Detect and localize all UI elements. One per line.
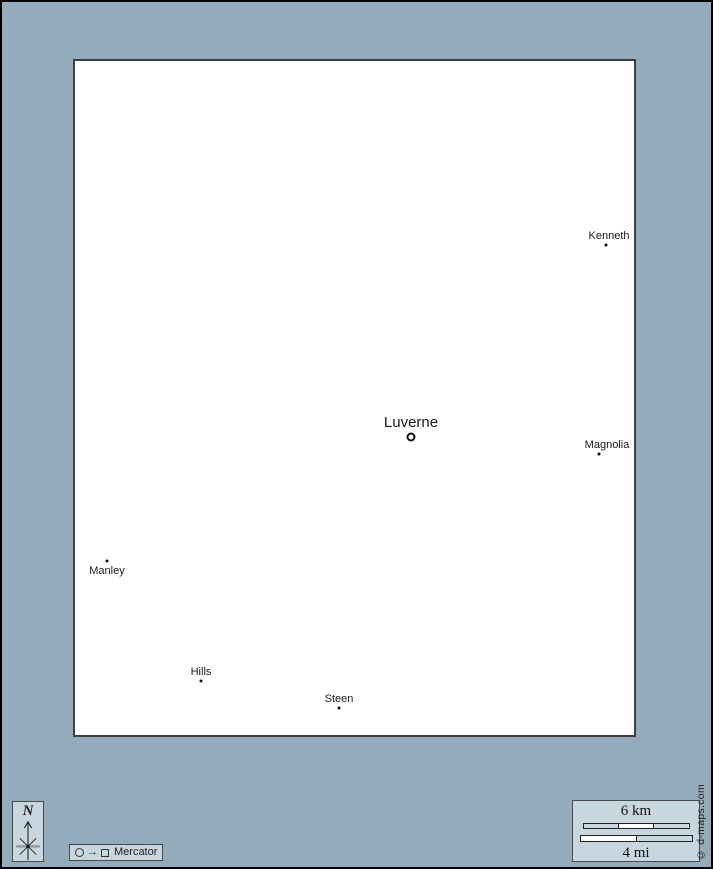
scale-km-label: 6 km: [621, 803, 651, 820]
scale-segment: [584, 824, 618, 829]
map-page: Kenneth Luverne Magnolia Manley Hills St…: [0, 0, 713, 869]
north-label: N: [23, 804, 34, 819]
city-dot-marker: [605, 244, 608, 247]
scale-bar-km: [583, 823, 690, 830]
copyright-credit: © d-maps.com: [695, 784, 707, 860]
city-label: Steen: [325, 693, 354, 705]
city-dot-marker: [338, 707, 341, 710]
scale-segment: [653, 824, 688, 829]
city-dot-marker: [200, 680, 203, 683]
square-icon: [101, 849, 109, 857]
scale-bar-mi: [580, 835, 693, 842]
city-dot-marker: [598, 453, 601, 456]
city-label: Magnolia: [585, 439, 630, 451]
scale-segment: [618, 824, 653, 829]
map-canvas: Kenneth Luverne Magnolia Manley Hills St…: [73, 59, 636, 737]
scale-mi-label: 4 mi: [622, 845, 649, 862]
city-dot-marker: [106, 560, 109, 563]
compass-rose-icon: [13, 819, 43, 861]
projection-name: Mercator: [112, 847, 157, 858]
projection-legend: → Mercator: [69, 844, 163, 861]
compass-box: N: [12, 801, 44, 862]
scale-box: 6 km 4 mi: [572, 800, 700, 862]
scale-segment: [581, 836, 636, 841]
scale-segment: [636, 836, 692, 841]
city-label: Manley: [89, 565, 124, 577]
arrow-right-icon: →: [87, 847, 98, 858]
circle-icon: [75, 848, 84, 857]
city-label: Kenneth: [589, 230, 630, 242]
city-label: Hills: [191, 666, 212, 678]
county-seat-ring-marker: [407, 433, 416, 442]
city-label: Luverne: [384, 415, 438, 432]
